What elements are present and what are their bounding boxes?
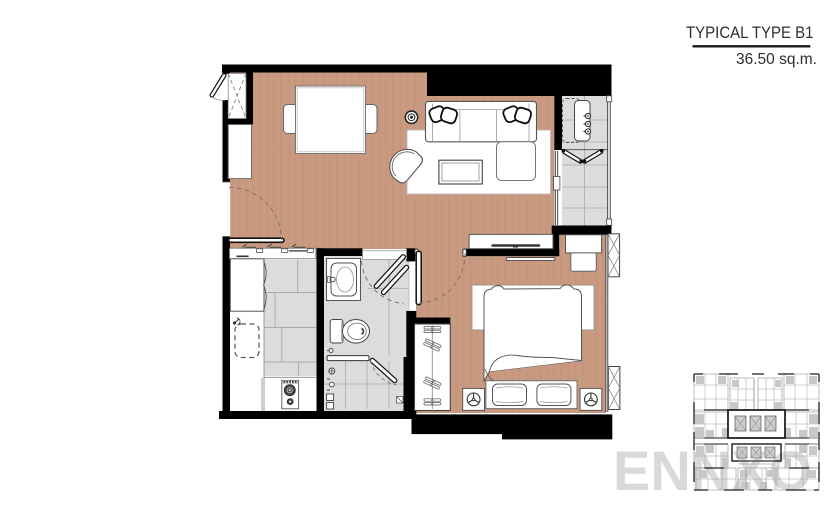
svg-text:36.50 sq.m.: 36.50 sq.m. — [736, 51, 817, 68]
svg-text:TYPICAL TYPE B1: TYPICAL TYPE B1 — [686, 23, 814, 42]
